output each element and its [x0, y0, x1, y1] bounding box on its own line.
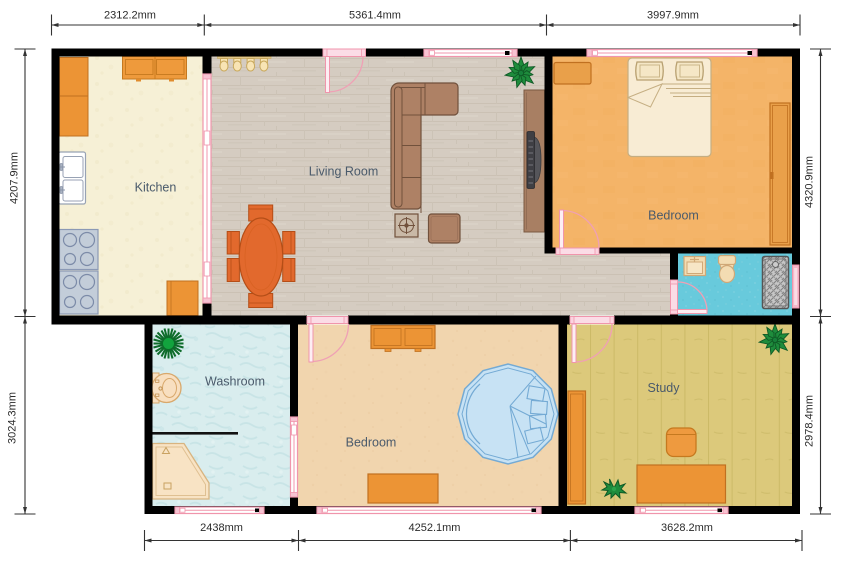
svg-text:5361.4mm: 5361.4mm	[349, 10, 401, 22]
svg-text:3997.9mm: 3997.9mm	[647, 10, 699, 22]
svg-text:Living Room: Living Room	[309, 165, 378, 179]
svg-text:2312.2mm: 2312.2mm	[104, 10, 156, 22]
svg-text:Bedroom: Bedroom	[648, 209, 699, 223]
svg-text:4320.9mm: 4320.9mm	[804, 156, 816, 208]
svg-text:Study: Study	[648, 381, 681, 395]
svg-text:Washroom: Washroom	[205, 375, 265, 389]
svg-text:3628.2mm: 3628.2mm	[661, 522, 713, 534]
svg-text:2978.4mm: 2978.4mm	[804, 395, 816, 447]
svg-text:2438mm: 2438mm	[200, 522, 243, 534]
svg-text:Bedroom: Bedroom	[346, 436, 397, 450]
svg-text:4252.1mm: 4252.1mm	[409, 522, 461, 534]
svg-text:4207.9mm: 4207.9mm	[9, 152, 21, 204]
svg-text:Kitchen: Kitchen	[135, 181, 177, 195]
svg-text:3024.3mm: 3024.3mm	[7, 392, 19, 444]
